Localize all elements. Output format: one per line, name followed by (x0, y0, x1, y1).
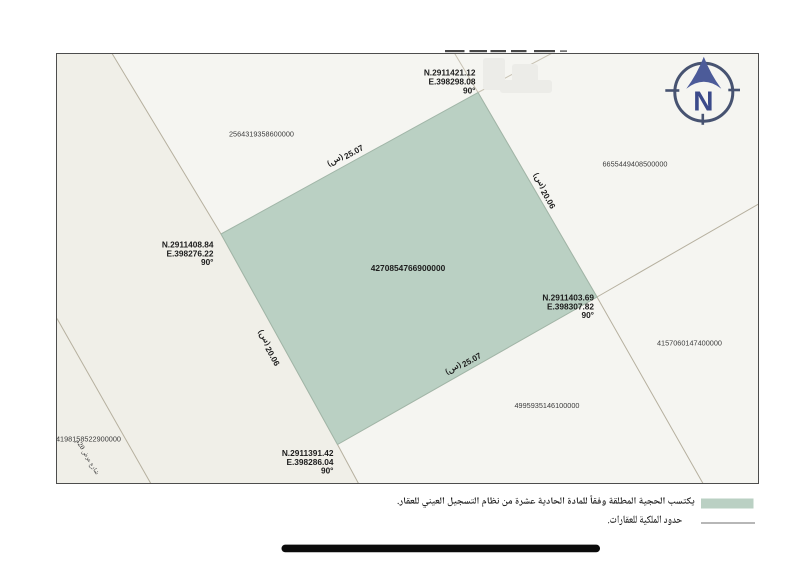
svg-text:6655449408500000: 6655449408500000 (603, 160, 668, 169)
svg-text:4270854766900000: 4270854766900000 (371, 263, 446, 273)
svg-text:90°: 90° (463, 86, 476, 96)
svg-text:N: N (693, 85, 713, 116)
svg-text:4198158522900000: 4198158522900000 (56, 435, 121, 444)
svg-text:90°: 90° (581, 310, 594, 320)
svg-text:4157060147400000: 4157060147400000 (657, 339, 722, 348)
svg-text:90°: 90° (201, 257, 214, 267)
svg-text:2564319358600000: 2564319358600000 (229, 130, 294, 139)
svg-text:90°: 90° (321, 466, 334, 476)
svg-text:4995935146100000: 4995935146100000 (515, 401, 580, 410)
